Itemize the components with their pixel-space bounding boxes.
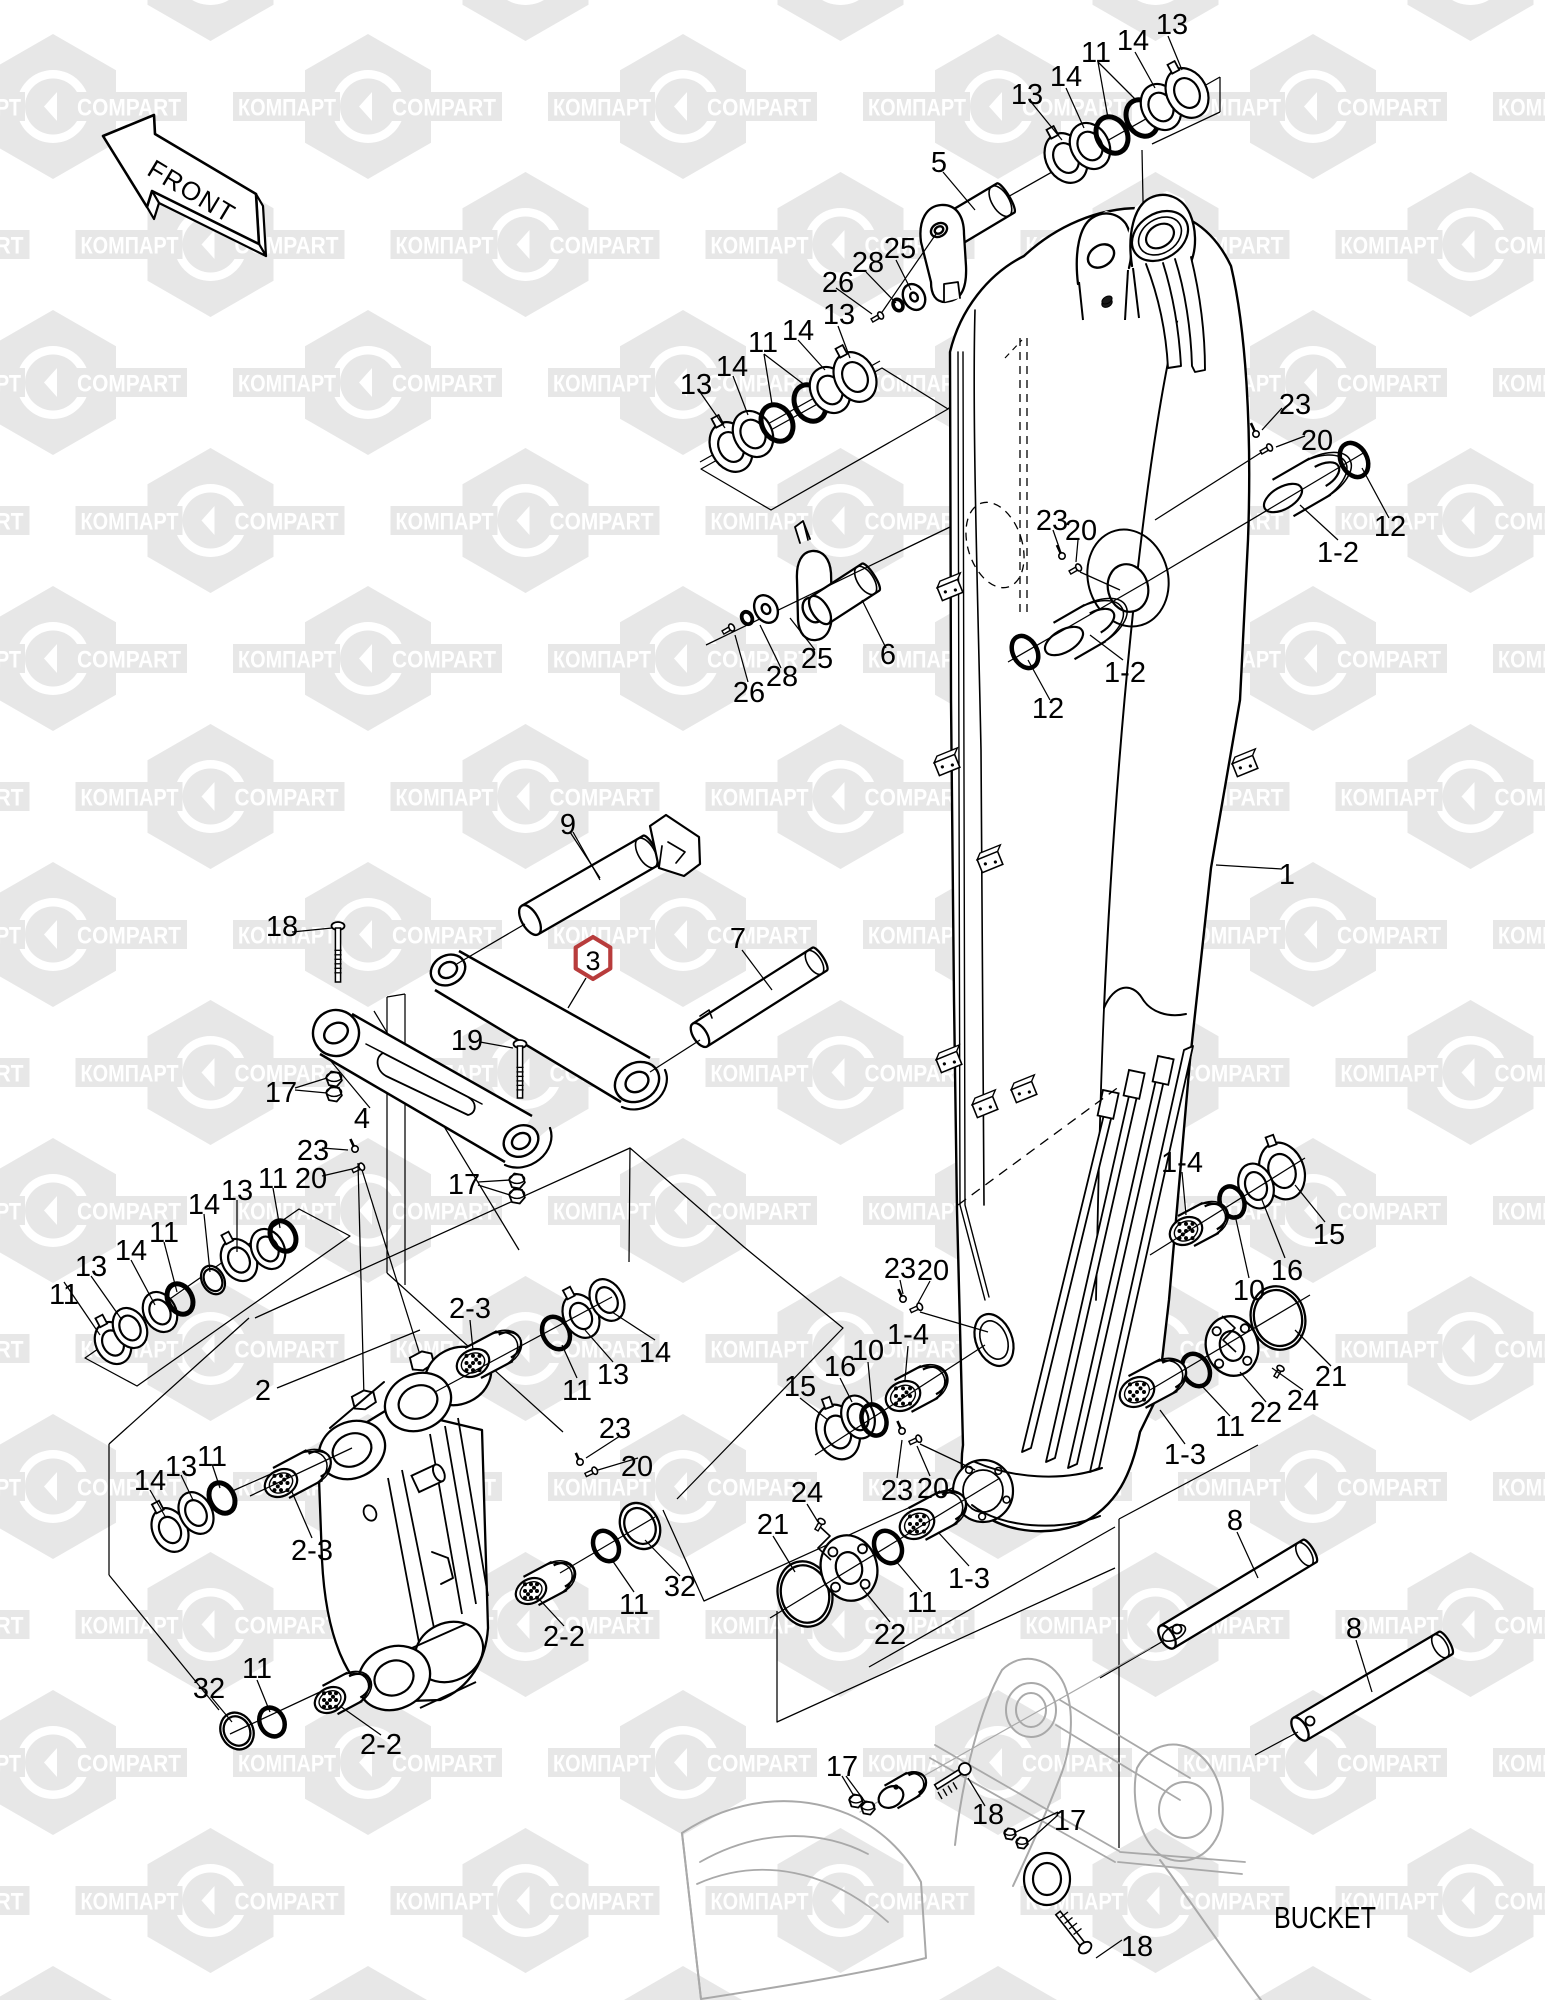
svg-text:16: 16: [1271, 1255, 1303, 1287]
svg-text:1-3: 1-3: [948, 1563, 990, 1595]
svg-text:23: 23: [1036, 505, 1068, 537]
svg-text:2-2: 2-2: [360, 1729, 402, 1761]
svg-text:12: 12: [1374, 511, 1406, 543]
svg-text:20: 20: [1065, 515, 1097, 547]
svg-text:25: 25: [884, 233, 916, 265]
svg-text:25: 25: [801, 643, 833, 675]
svg-text:13: 13: [680, 369, 712, 401]
svg-text:14: 14: [1117, 25, 1149, 57]
svg-text:17: 17: [1054, 1805, 1086, 1837]
svg-text:26: 26: [822, 267, 854, 299]
svg-text:11: 11: [197, 1441, 227, 1473]
svg-text:BUCKET: BUCKET: [1274, 1900, 1376, 1935]
svg-text:1-4: 1-4: [1161, 1147, 1203, 1179]
svg-text:11: 11: [748, 327, 778, 359]
svg-text:11: 11: [1081, 37, 1111, 69]
svg-text:1-2: 1-2: [1317, 537, 1359, 569]
svg-text:13: 13: [1156, 9, 1188, 41]
svg-text:23: 23: [599, 1413, 631, 1445]
svg-text:2: 2: [255, 1375, 271, 1407]
svg-text:4: 4: [354, 1103, 370, 1135]
svg-text:17: 17: [448, 1169, 480, 1201]
svg-text:1-2: 1-2: [1104, 657, 1146, 689]
svg-text:13: 13: [597, 1359, 629, 1391]
svg-text:14: 14: [115, 1235, 147, 1267]
svg-text:19: 19: [451, 1025, 483, 1057]
svg-text:13: 13: [165, 1451, 197, 1483]
svg-text:14: 14: [639, 1337, 671, 1369]
svg-text:1: 1: [1279, 859, 1295, 891]
svg-text:21: 21: [757, 1509, 789, 1541]
svg-text:12: 12: [1032, 693, 1064, 725]
svg-text:13: 13: [221, 1175, 253, 1207]
svg-text:21: 21: [1315, 1361, 1347, 1393]
svg-text:11: 11: [619, 1589, 649, 1621]
svg-text:8: 8: [1346, 1613, 1362, 1645]
svg-text:14: 14: [188, 1189, 220, 1221]
svg-text:11: 11: [258, 1163, 288, 1195]
svg-text:10: 10: [852, 1335, 884, 1367]
svg-text:14: 14: [716, 351, 748, 383]
svg-text:13: 13: [823, 299, 855, 331]
svg-text:18: 18: [1121, 1931, 1153, 1963]
svg-text:7: 7: [730, 923, 746, 955]
svg-text:20: 20: [295, 1163, 327, 1195]
svg-text:24: 24: [791, 1477, 823, 1509]
svg-text:18: 18: [972, 1799, 1004, 1831]
svg-text:11: 11: [49, 1279, 79, 1311]
svg-text:11: 11: [1215, 1411, 1245, 1443]
svg-text:2-2: 2-2: [543, 1621, 585, 1653]
svg-text:14: 14: [782, 315, 814, 347]
svg-text:3: 3: [585, 946, 600, 976]
svg-text:11: 11: [149, 1217, 179, 1249]
svg-text:10: 10: [1233, 1275, 1265, 1307]
svg-text:20: 20: [621, 1451, 653, 1483]
svg-text:15: 15: [1313, 1219, 1345, 1251]
svg-text:23: 23: [884, 1253, 916, 1285]
svg-text:13: 13: [1011, 79, 1043, 111]
svg-text:11: 11: [242, 1653, 272, 1685]
svg-text:8: 8: [1227, 1505, 1243, 1537]
svg-text:9: 9: [560, 809, 576, 841]
svg-text:2-3: 2-3: [449, 1293, 491, 1325]
svg-text:1-3: 1-3: [1164, 1439, 1206, 1471]
svg-text:20: 20: [917, 1255, 949, 1287]
svg-text:15: 15: [784, 1371, 816, 1403]
svg-text:17: 17: [265, 1077, 297, 1109]
svg-text:18: 18: [266, 911, 298, 943]
svg-text:23: 23: [1279, 389, 1311, 421]
svg-text:17: 17: [826, 1751, 858, 1783]
svg-text:11: 11: [907, 1587, 937, 1619]
svg-text:13: 13: [75, 1251, 107, 1283]
svg-text:14: 14: [134, 1465, 166, 1497]
svg-text:22: 22: [1250, 1397, 1282, 1429]
svg-text:11: 11: [562, 1375, 592, 1407]
svg-text:20: 20: [917, 1473, 949, 1505]
svg-text:32: 32: [193, 1673, 225, 1705]
svg-text:6: 6: [880, 639, 896, 671]
svg-text:1-4: 1-4: [887, 1319, 929, 1351]
svg-text:28: 28: [766, 661, 798, 693]
svg-text:26: 26: [733, 677, 765, 709]
svg-text:22: 22: [874, 1619, 906, 1651]
svg-text:20: 20: [1301, 425, 1333, 457]
svg-text:32: 32: [664, 1571, 696, 1603]
svg-text:2-3: 2-3: [291, 1535, 333, 1567]
svg-text:23: 23: [881, 1475, 913, 1507]
